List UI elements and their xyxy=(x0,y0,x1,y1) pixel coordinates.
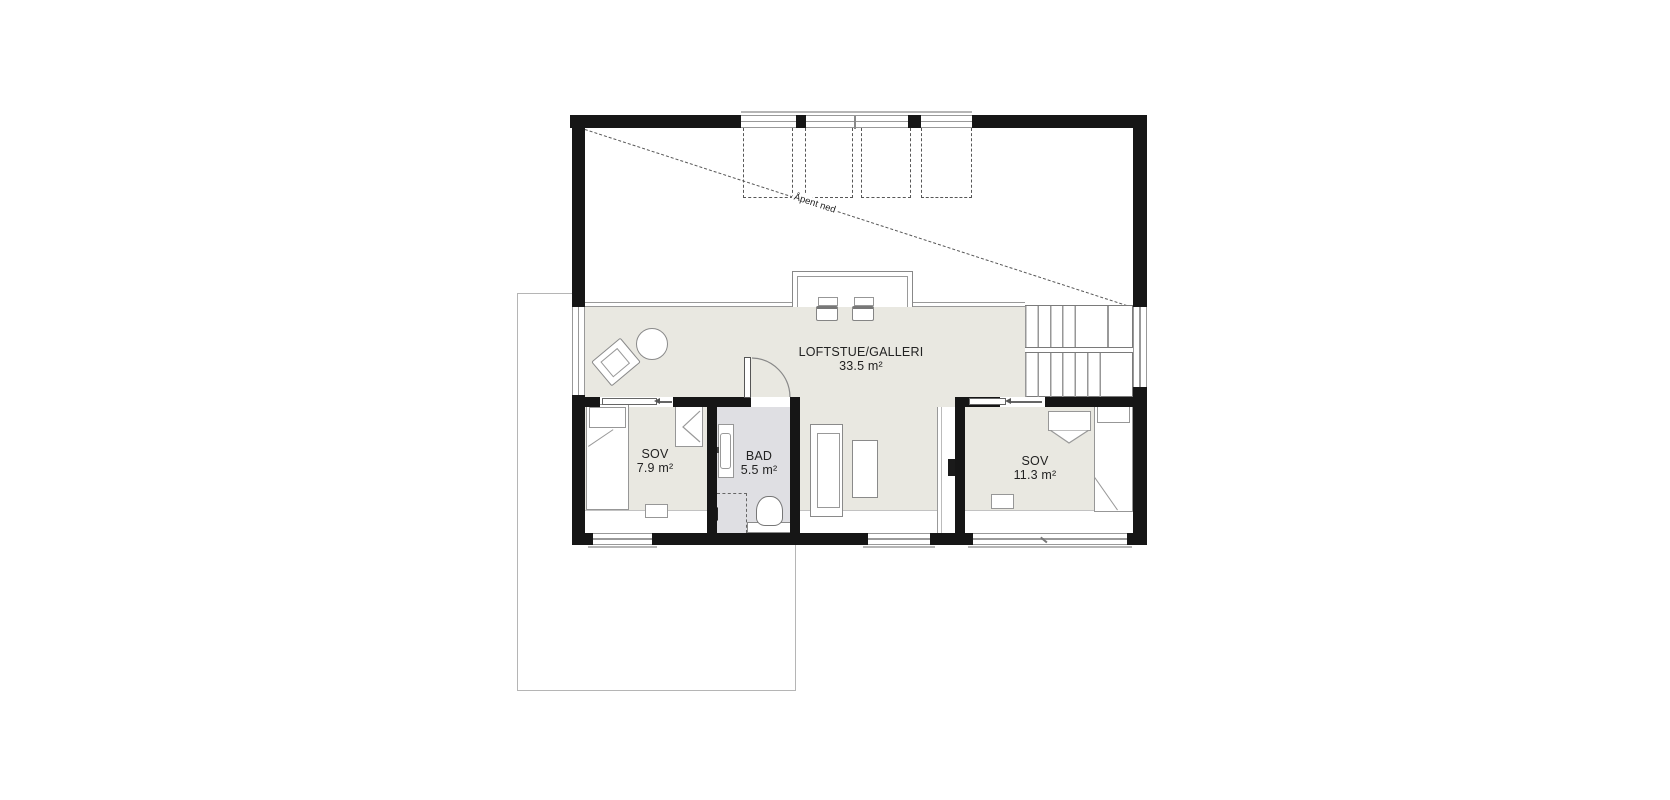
window-top-1 xyxy=(741,115,796,128)
floor-plan: Åpent ned xyxy=(0,0,1670,800)
chair-left xyxy=(816,306,838,321)
wall-int-h-4 xyxy=(1045,397,1147,407)
skylight-dashed-2 xyxy=(805,128,853,198)
wall-left-upper xyxy=(572,115,585,307)
label-loftstue-name: LOFTSTUE/GALLERI xyxy=(771,345,951,359)
stairs-upper-flight xyxy=(1025,306,1087,348)
sov1-sliding-door-track xyxy=(659,401,672,403)
bad-door-leaf xyxy=(744,357,751,398)
gallery-railing-left xyxy=(585,302,792,307)
bed-sov1-pillow xyxy=(589,407,626,428)
window-lintel-line xyxy=(741,111,972,113)
window-top-2-mullion xyxy=(854,116,856,129)
label-sov2-area: 11.3 m² xyxy=(985,468,1085,482)
wardrobe-sov2-chevron xyxy=(1048,430,1091,446)
wall-top-1 xyxy=(570,115,741,128)
sov1-sliding-door-panel xyxy=(602,398,657,405)
wall-top-2 xyxy=(972,115,1147,128)
window-right-stair xyxy=(1133,307,1147,387)
terrace-outline-bottom xyxy=(517,690,796,691)
label-sov1-name: SOV xyxy=(605,447,705,461)
terrace-outline-left xyxy=(517,293,518,690)
window-sill-line-2 xyxy=(863,546,935,548)
wall-right-lower xyxy=(1133,387,1147,545)
balcony-ledge-left xyxy=(818,297,838,306)
terrace-outline-right xyxy=(795,545,796,690)
label-sov1: SOV 7.9 m² xyxy=(605,447,705,476)
wall-bottom-3 xyxy=(930,533,973,545)
label-bad: BAD 5.5 m² xyxy=(709,449,809,478)
skylight-dashed-4 xyxy=(921,128,972,198)
skylight-dashed-3 xyxy=(861,128,911,198)
balcony-ledge-right xyxy=(854,297,874,306)
wall-right-upper xyxy=(1133,115,1147,307)
label-sov2: SOV 11.3 m² xyxy=(985,454,1085,483)
label-loftstue-area: 33.5 m² xyxy=(771,359,951,373)
label-loftstue: LOFTSTUE/GALLERI 33.5 m² xyxy=(771,345,951,374)
chair-right xyxy=(852,306,874,321)
dresser-sov1 xyxy=(645,504,668,518)
wall-bottom-1 xyxy=(572,533,593,545)
wall-sov2-left xyxy=(955,407,965,533)
nightstand-sov2 xyxy=(991,494,1014,509)
window-sill-line-1 xyxy=(588,546,657,548)
wall-top-pier-1 xyxy=(796,115,806,128)
sov2-sliding-door-track xyxy=(1010,401,1042,403)
round-table xyxy=(636,328,668,360)
sov2-sliding-door-arrow xyxy=(1005,398,1011,404)
terrace-outline-top xyxy=(517,293,573,294)
label-bad-area: 5.5 m² xyxy=(709,463,809,477)
sov2-sliding-door-panel xyxy=(969,398,1006,405)
coffee-table xyxy=(852,440,878,498)
low-ceiling-band-sov2 xyxy=(965,510,1133,533)
stairs-lower-flight xyxy=(1025,353,1109,397)
sofa-seat xyxy=(817,433,840,508)
window-bottom-middle xyxy=(868,533,930,545)
window-bottom-sov1 xyxy=(593,533,652,545)
stairs-mid-landing-line xyxy=(1025,347,1133,353)
wall-top-pier-2 xyxy=(908,115,921,128)
window-top-3 xyxy=(921,115,972,128)
wardrobe-sov2 xyxy=(1048,411,1091,431)
wall-bottom-4 xyxy=(1127,533,1147,545)
stairs-landing-divider xyxy=(1107,306,1109,347)
gallery-railing-right xyxy=(913,302,1025,307)
shower-zone xyxy=(717,493,747,533)
toilet-bowl xyxy=(756,496,783,526)
window-left xyxy=(572,307,585,395)
wall-left-lower xyxy=(572,395,585,545)
balcony-rail-inner xyxy=(797,276,908,307)
sov1-sliding-door-arrow xyxy=(654,398,660,404)
label-sov2-name: SOV xyxy=(985,454,1085,468)
sofa xyxy=(810,424,843,517)
sov2-pocket-line xyxy=(941,407,942,533)
wardrobe-sov1-chevron xyxy=(675,406,703,447)
wall-bottom-2 xyxy=(652,533,868,545)
window-bottom-sov2 xyxy=(973,533,1127,545)
label-sov1-area: 7.9 m² xyxy=(605,461,705,475)
window-sill-line-3 xyxy=(968,546,1132,548)
label-bad-name: BAD xyxy=(709,449,809,463)
window-top-2 xyxy=(806,115,908,128)
armchair-seat xyxy=(600,348,630,377)
wall-int-h-1 xyxy=(585,397,600,407)
